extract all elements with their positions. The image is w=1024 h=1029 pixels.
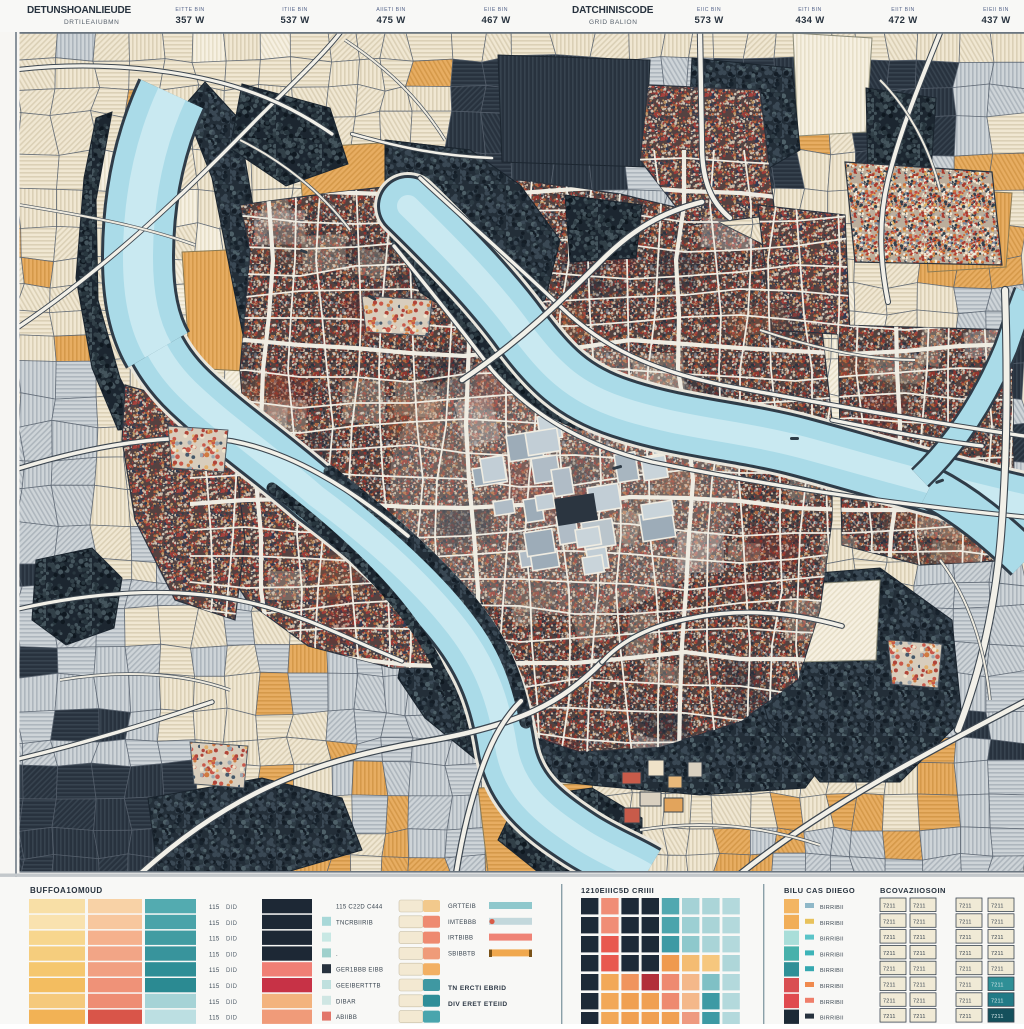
svg-text:7211: 7211 <box>991 919 1004 925</box>
svg-text:DID: DID <box>226 968 238 974</box>
svg-text:DID: DID <box>226 921 238 927</box>
svg-text:7211: 7211 <box>959 904 972 910</box>
svg-text:115: 115 <box>209 952 220 958</box>
svg-text:7211: 7211 <box>991 904 1004 910</box>
svg-text:7211: 7211 <box>913 967 926 973</box>
svg-text:DID: DID <box>226 1000 238 1006</box>
svg-text:BCOVAZIIOSOIN: BCOVAZIIOSOIN <box>880 886 946 895</box>
svg-text:DIV ERET ETEIID: DIV ERET ETEIID <box>448 1001 508 1008</box>
svg-text:GEEIBERTTTB: GEEIBERTTTB <box>336 984 381 990</box>
svg-text:TNCRBIIRIB: TNCRBIIRIB <box>336 920 373 926</box>
svg-text:BIRRIBII: BIRRIBII <box>820 905 844 911</box>
svg-text:7211: 7211 <box>883 967 896 973</box>
svg-text:115: 115 <box>209 937 220 943</box>
svg-text:467 W: 467 W <box>482 15 511 26</box>
svg-text:357 W: 357 W <box>176 15 205 26</box>
svg-text:.: . <box>336 952 338 958</box>
svg-text:7211: 7211 <box>959 998 972 1004</box>
svg-text:7211: 7211 <box>913 951 926 957</box>
svg-text:7211: 7211 <box>913 1014 926 1020</box>
svg-text:BIRRIBII: BIRRIBII <box>820 937 844 943</box>
svg-text:7211: 7211 <box>883 951 896 957</box>
svg-text:BIRRIBII: BIRRIBII <box>820 921 844 927</box>
svg-text:475 W: 475 W <box>377 15 406 26</box>
svg-text:DID: DID <box>226 1016 238 1022</box>
svg-text:115: 115 <box>209 921 220 927</box>
svg-text:DID: DID <box>226 984 238 990</box>
svg-text:BIRRIBII: BIRRIBII <box>820 1016 844 1022</box>
svg-text:7211: 7211 <box>959 919 972 925</box>
svg-text:BIRRIBII: BIRRIBII <box>820 968 844 974</box>
svg-text:7211: 7211 <box>883 919 896 925</box>
svg-text:7211: 7211 <box>883 904 896 910</box>
svg-text:GRID BALION: GRID BALION <box>589 19 638 26</box>
svg-text:AIIETI BIN: AIIETI BIN <box>376 7 406 13</box>
svg-text:7211: 7211 <box>959 1014 972 1020</box>
svg-text:DID: DID <box>226 937 238 943</box>
svg-text:7211: 7211 <box>883 998 896 1004</box>
svg-text:TN ERCTI EBRID: TN ERCTI EBRID <box>448 985 506 992</box>
svg-text:7211: 7211 <box>913 919 926 925</box>
svg-text:7211: 7211 <box>883 935 896 941</box>
svg-text:1210EIIIC5D CRIIII: 1210EIIIC5D CRIIII <box>581 886 654 895</box>
svg-text:7211: 7211 <box>991 998 1004 1004</box>
svg-text:BIRRIBII: BIRRIBII <box>820 1000 844 1006</box>
svg-text:434 W: 434 W <box>796 15 825 26</box>
svg-text:EIIC BIN: EIIC BIN <box>697 7 721 13</box>
svg-text:EIEII BIN: EIEII BIN <box>983 7 1009 13</box>
svg-text:EITI BIN: EITI BIN <box>798 7 822 13</box>
svg-text:7211: 7211 <box>991 1014 1004 1020</box>
svg-text:DETUNSHOANLIEUDE: DETUNSHOANLIEUDE <box>27 5 132 16</box>
svg-text:7211: 7211 <box>991 951 1004 957</box>
svg-text:EIIT BIN: EIIT BIN <box>891 7 915 13</box>
svg-text:472 W: 472 W <box>889 15 918 26</box>
svg-text:115: 115 <box>209 1000 220 1006</box>
svg-text:ABIIBB: ABIIBB <box>336 1015 357 1021</box>
svg-text:SBIBBTB: SBIBBTB <box>448 951 475 957</box>
svg-text:115: 115 <box>209 905 220 911</box>
svg-text:DID: DID <box>226 952 238 958</box>
svg-text:7211: 7211 <box>913 998 926 1004</box>
svg-text:115: 115 <box>209 984 220 990</box>
svg-text:7211: 7211 <box>883 983 896 989</box>
svg-text:7211: 7211 <box>959 967 972 973</box>
svg-text:7211: 7211 <box>991 983 1004 989</box>
svg-text:BILU CAS DIIEGO: BILU CAS DIIEGO <box>784 886 855 895</box>
svg-text:BIRRIBII: BIRRIBII <box>820 952 844 958</box>
svg-text:ITIIE BIN: ITIIE BIN <box>282 7 308 13</box>
svg-text:573 W: 573 W <box>695 15 724 26</box>
svg-text:7211: 7211 <box>913 904 926 910</box>
svg-text:DIBAR: DIBAR <box>336 999 356 1005</box>
svg-text:DRTILEAIUBMN: DRTILEAIUBMN <box>64 19 119 26</box>
svg-text:7211: 7211 <box>991 967 1004 973</box>
svg-text:EITTE BIN: EITTE BIN <box>175 7 204 13</box>
svg-text:DID: DID <box>226 905 238 911</box>
svg-text:7211: 7211 <box>959 935 972 941</box>
svg-text:7211: 7211 <box>959 983 972 989</box>
svg-text:115: 115 <box>209 968 220 974</box>
svg-text:IMTEBBB: IMTEBBB <box>448 920 476 926</box>
svg-text:115: 115 <box>209 1016 220 1022</box>
svg-text:7211: 7211 <box>991 935 1004 941</box>
svg-text:EIIE BIN: EIIE BIN <box>484 7 508 13</box>
svg-text:7211: 7211 <box>959 951 972 957</box>
svg-text:BUFFOA1OM0UD: BUFFOA1OM0UD <box>30 886 103 895</box>
svg-text:GRTTEIB: GRTTEIB <box>448 904 476 910</box>
svg-text:537 W: 537 W <box>281 15 310 26</box>
svg-text:DATCHINISCODE: DATCHINISCODE <box>572 5 654 16</box>
svg-text:437 W: 437 W <box>982 15 1011 26</box>
svg-text:BIRRIBII: BIRRIBII <box>820 984 844 990</box>
svg-text:7211: 7211 <box>913 935 926 941</box>
svg-text:GER1BBB EIBB: GER1BBB EIBB <box>336 968 383 974</box>
svg-text:7211: 7211 <box>913 983 926 989</box>
svg-text:7211: 7211 <box>883 1014 896 1020</box>
svg-text:IRTBIBB: IRTBIBB <box>448 936 473 942</box>
svg-text:115 C22D C444: 115 C22D C444 <box>336 905 383 911</box>
